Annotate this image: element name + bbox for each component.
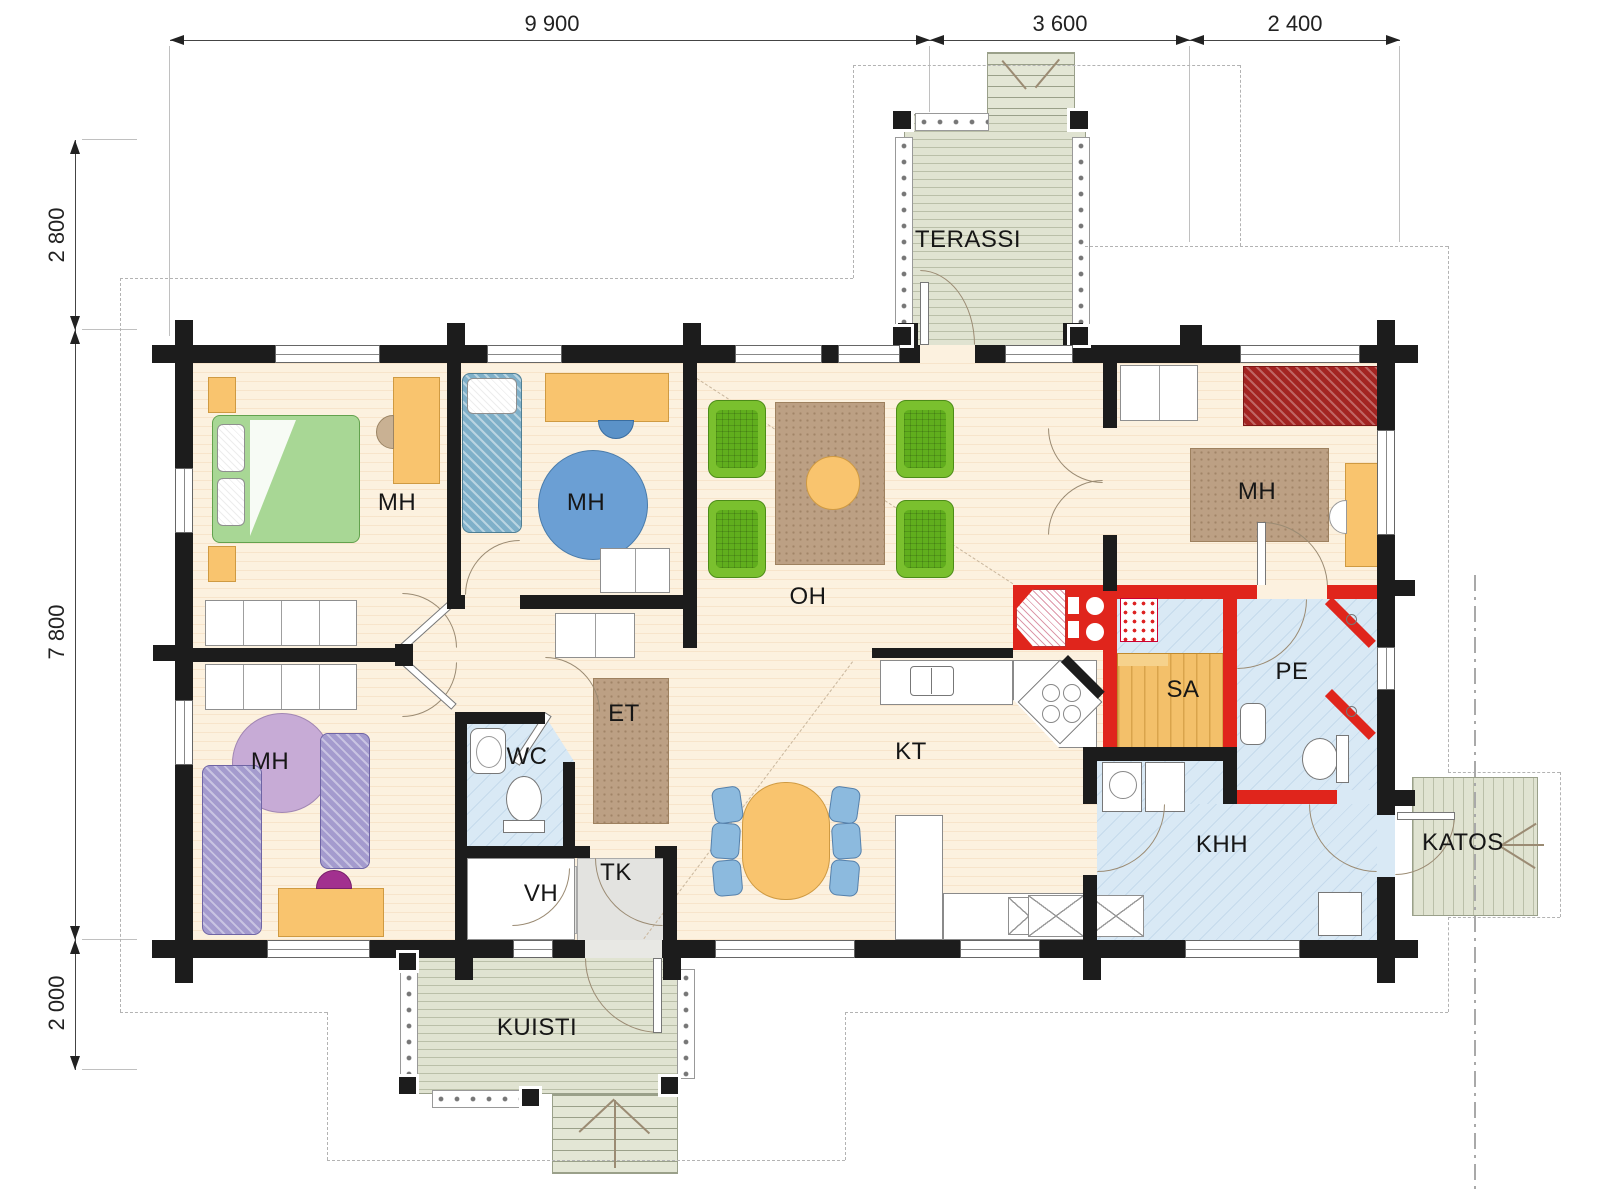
- window: [267, 940, 370, 958]
- log-corner: [175, 320, 193, 345]
- washing-machine-drum: [1109, 771, 1137, 799]
- shower-head: [1346, 706, 1357, 717]
- room-label-mh1: MH: [378, 489, 416, 517]
- dining-table: [742, 782, 830, 900]
- desk: [545, 373, 669, 422]
- wc-toilet-tank: [503, 820, 545, 833]
- desk: [278, 888, 384, 937]
- shower-head: [1346, 614, 1357, 625]
- window: [513, 940, 553, 958]
- log-corner: [152, 345, 175, 363]
- log-corner: [152, 940, 175, 958]
- door-leaf: [920, 282, 929, 345]
- wall-oh-mh2: [683, 363, 697, 648]
- extension-line: [82, 1069, 137, 1070]
- terassi-railing-left: [895, 137, 913, 327]
- armchair-pad: [716, 410, 758, 468]
- window: [1005, 345, 1073, 363]
- dim-label-7800: 7 800: [44, 604, 70, 659]
- extension-line: [1189, 46, 1190, 242]
- fire-wall-sa-pe: [1223, 599, 1237, 747]
- log-corner: [1395, 345, 1418, 363]
- window: [715, 940, 855, 958]
- wall-khh-left: [1083, 875, 1097, 940]
- bed-blanket-fold: [250, 420, 296, 536]
- window: [487, 345, 562, 363]
- terassi-railing-right: [1072, 137, 1090, 327]
- floor-plan: MH MH MH MH OH KT ET WC VH TK SA PE KHH …: [0, 0, 1600, 1200]
- armchair-pad: [904, 510, 946, 568]
- toilet-bowl: [1302, 738, 1338, 780]
- nightstand: [208, 546, 236, 582]
- wall-mh1-hall: [193, 648, 402, 662]
- terassi-post: [893, 111, 911, 129]
- dim-arrow: [70, 140, 80, 154]
- wc-toilet-bowl: [506, 776, 542, 822]
- terassi-post: [1070, 327, 1088, 345]
- dim-arrow: [70, 926, 80, 940]
- window: [735, 345, 822, 363]
- room-label-et: ET: [608, 700, 640, 728]
- dim-arrow: [1190, 35, 1204, 45]
- dim-arrow: [916, 35, 930, 45]
- log-corner: [1180, 325, 1202, 345]
- stove-burner: [1042, 705, 1060, 723]
- log-corner: [1377, 320, 1395, 345]
- dim-label-3600: 3 600: [1032, 11, 1087, 37]
- stove-burner: [1063, 684, 1081, 702]
- flue-opening: [1086, 597, 1104, 615]
- room-label-mh2: MH: [567, 489, 605, 517]
- wall-left: [175, 345, 193, 958]
- dim-arrow: [1386, 35, 1400, 45]
- extension-line: [82, 329, 137, 330]
- roof-outline: [120, 278, 121, 1012]
- window: [175, 700, 193, 765]
- cabinet: [600, 548, 670, 593]
- sauna-stove: [1120, 598, 1158, 642]
- sideboard: [555, 613, 635, 658]
- terassi-stairs: [988, 53, 1074, 115]
- kuisti-railing-left: [400, 969, 418, 1079]
- door-opening: [1337, 790, 1377, 804]
- dim-arrow: [70, 1056, 80, 1070]
- door-opening: [1377, 815, 1395, 877]
- bed-pillow: [467, 378, 517, 414]
- kuisti-post: [399, 953, 416, 970]
- dining-chair: [828, 859, 860, 897]
- room-label-sa: SA: [1166, 676, 1199, 704]
- armchair-pad: [904, 410, 946, 468]
- room-label-wc: WC: [507, 743, 548, 771]
- room-label-terassi: TERASSI: [915, 226, 1021, 254]
- door-leaf: [653, 958, 662, 1033]
- roof-outline: [327, 1160, 845, 1161]
- fire-wall-pe-top: [1327, 585, 1377, 599]
- door-leaf: [1257, 522, 1266, 586]
- wall-sauna-bottom: [1083, 747, 1237, 761]
- section-line: [1474, 575, 1476, 1195]
- stove-burner: [1063, 705, 1081, 723]
- room-label-oh: OH: [790, 583, 827, 611]
- wall-oh-mh4: [1103, 363, 1117, 428]
- kitchen-sink-divider: [931, 668, 932, 694]
- flue-opening: [1086, 623, 1104, 641]
- fire-wall-sauna-top: [1117, 585, 1257, 599]
- single-bed: [202, 765, 262, 935]
- dining-chair: [711, 859, 743, 897]
- extension-line: [169, 46, 170, 336]
- dim-arrow: [930, 35, 944, 45]
- roof-outline: [845, 1012, 1448, 1013]
- dim-label-2000: 2 000: [44, 975, 70, 1030]
- room-label-mh3: MH: [251, 748, 289, 776]
- wall-mh2-et: [520, 595, 697, 609]
- log-corner: [683, 323, 701, 345]
- roof-outline: [1448, 917, 1449, 1012]
- base-cabinet: [1028, 895, 1084, 937]
- window: [1185, 940, 1300, 958]
- wall-wc-top: [455, 712, 545, 724]
- armchair: [708, 400, 766, 478]
- dim-label-2800: 2 800: [44, 207, 70, 262]
- log-corner: [1083, 958, 1101, 980]
- kuisti-railing-bottom: [432, 1090, 524, 1108]
- log-corner: [447, 323, 465, 345]
- log-corner: [1395, 580, 1415, 596]
- window: [1240, 345, 1360, 363]
- fire-wall-pe-bottom: [1237, 790, 1337, 804]
- roof-outline: [1448, 772, 1560, 773]
- room-label-mh4: MH: [1238, 478, 1276, 506]
- roof-outline: [853, 65, 854, 278]
- log-corner: [455, 958, 473, 980]
- bed-pillow: [217, 478, 245, 526]
- armchair-pad: [716, 510, 758, 568]
- fireplace-slot: [1068, 621, 1079, 638]
- wall-sa-pe-lower: [1223, 761, 1237, 804]
- roof-outline: [1448, 917, 1560, 918]
- dim-arrow: [70, 316, 80, 330]
- extension-line: [1399, 46, 1400, 242]
- terassi-post: [893, 327, 911, 345]
- wall-tk-right: [663, 846, 677, 958]
- kuisti-post: [661, 1077, 678, 1094]
- dim-arrow: [70, 330, 80, 344]
- kitchen-half-wall: [872, 648, 1013, 658]
- bed-pillow: [217, 424, 245, 472]
- extension-line: [929, 46, 930, 112]
- wall-khh-left: [1083, 757, 1097, 804]
- window: [1377, 430, 1395, 535]
- fireplace-slot: [1068, 597, 1079, 614]
- roof-outline: [120, 278, 853, 279]
- extension-line: [82, 139, 137, 140]
- dim-label-2400: 2 400: [1267, 11, 1322, 37]
- wc-sink-bowl: [476, 736, 502, 768]
- window: [838, 345, 900, 363]
- dim-arrow: [70, 940, 80, 954]
- extension-line: [82, 939, 137, 940]
- window: [175, 468, 193, 533]
- room-label-kt: KT: [895, 738, 927, 766]
- double-bed: [1243, 366, 1379, 426]
- wardrobe-row: [205, 664, 357, 710]
- roof-outline: [1560, 772, 1561, 917]
- dining-chair: [831, 822, 862, 860]
- wall-tk-top: [577, 846, 590, 858]
- toilet-tank: [1336, 735, 1349, 783]
- log-corner: [153, 645, 175, 661]
- kuisti-railing-right: [677, 969, 695, 1079]
- room-label-khh: KHH: [1196, 831, 1248, 859]
- roof-outline: [1240, 65, 1241, 246]
- wardrobe-row: [205, 600, 357, 646]
- window: [1377, 647, 1395, 690]
- roof-outline: [853, 65, 1240, 66]
- wall-et-mh3: [455, 712, 467, 958]
- door-opening: [585, 940, 662, 958]
- nightstand: [208, 377, 236, 413]
- kitchen-sink: [910, 666, 954, 696]
- roof-outline: [327, 1012, 328, 1160]
- coffee-table: [806, 456, 860, 510]
- terassi-post: [1070, 111, 1088, 129]
- room-label-kuisti: KUISTI: [497, 1014, 577, 1042]
- utility-sink: [1318, 892, 1362, 936]
- fire-wall-sauna-left: [1103, 585, 1117, 761]
- wall-mh2-et: [447, 595, 465, 609]
- door-leaf: [1397, 812, 1455, 820]
- stove-burner: [1042, 684, 1060, 702]
- door-opening: [1257, 585, 1327, 599]
- room-label-vh: VH: [524, 880, 558, 908]
- room-label-pe: PE: [1275, 658, 1308, 686]
- wall-wc-right: [563, 762, 575, 846]
- wall-mh1-mh2: [447, 363, 461, 595]
- window: [275, 345, 380, 363]
- dim-arrow: [1176, 35, 1190, 45]
- desk: [393, 377, 440, 484]
- roof-outline: [120, 1012, 327, 1013]
- log-corner: [175, 958, 193, 983]
- armchair: [708, 500, 766, 578]
- terassi-railing-top: [915, 113, 989, 131]
- kuisti-stairs-arrow: [614, 1100, 616, 1168]
- armchair: [896, 500, 954, 578]
- wall-oh-mh4: [1103, 535, 1117, 591]
- wall-post: [395, 644, 413, 666]
- log-corner: [1395, 940, 1418, 958]
- kitchen-island: [895, 815, 943, 940]
- door-opening: [920, 345, 975, 363]
- wall-wc-bottom: [455, 846, 577, 858]
- log-corner: [1377, 958, 1395, 983]
- dim-arrow: [170, 35, 184, 45]
- sauna-bench-step: [1118, 654, 1168, 666]
- room-label-tk: TK: [600, 859, 632, 887]
- dining-chair: [711, 785, 745, 825]
- roof-outline: [1085, 246, 1448, 247]
- washbasin: [1240, 703, 1266, 745]
- desk: [1345, 463, 1379, 567]
- dimension-line-top: [170, 40, 1400, 41]
- roof-outline: [845, 1012, 846, 1160]
- roof-outline: [1448, 246, 1449, 772]
- log-corner: [1395, 790, 1415, 806]
- log-corner: [663, 958, 681, 980]
- kuisti-post: [522, 1089, 539, 1106]
- window: [960, 940, 1040, 958]
- closet: [1120, 365, 1198, 421]
- dining-chair: [710, 822, 741, 860]
- armchair: [896, 400, 954, 478]
- kuisti-post: [399, 1077, 416, 1094]
- dim-label-9900: 9 900: [524, 11, 579, 37]
- dining-chair: [828, 785, 862, 825]
- single-bed: [320, 733, 370, 869]
- katos-arrow: [1500, 844, 1544, 846]
- room-label-katos: KATOS: [1422, 829, 1504, 857]
